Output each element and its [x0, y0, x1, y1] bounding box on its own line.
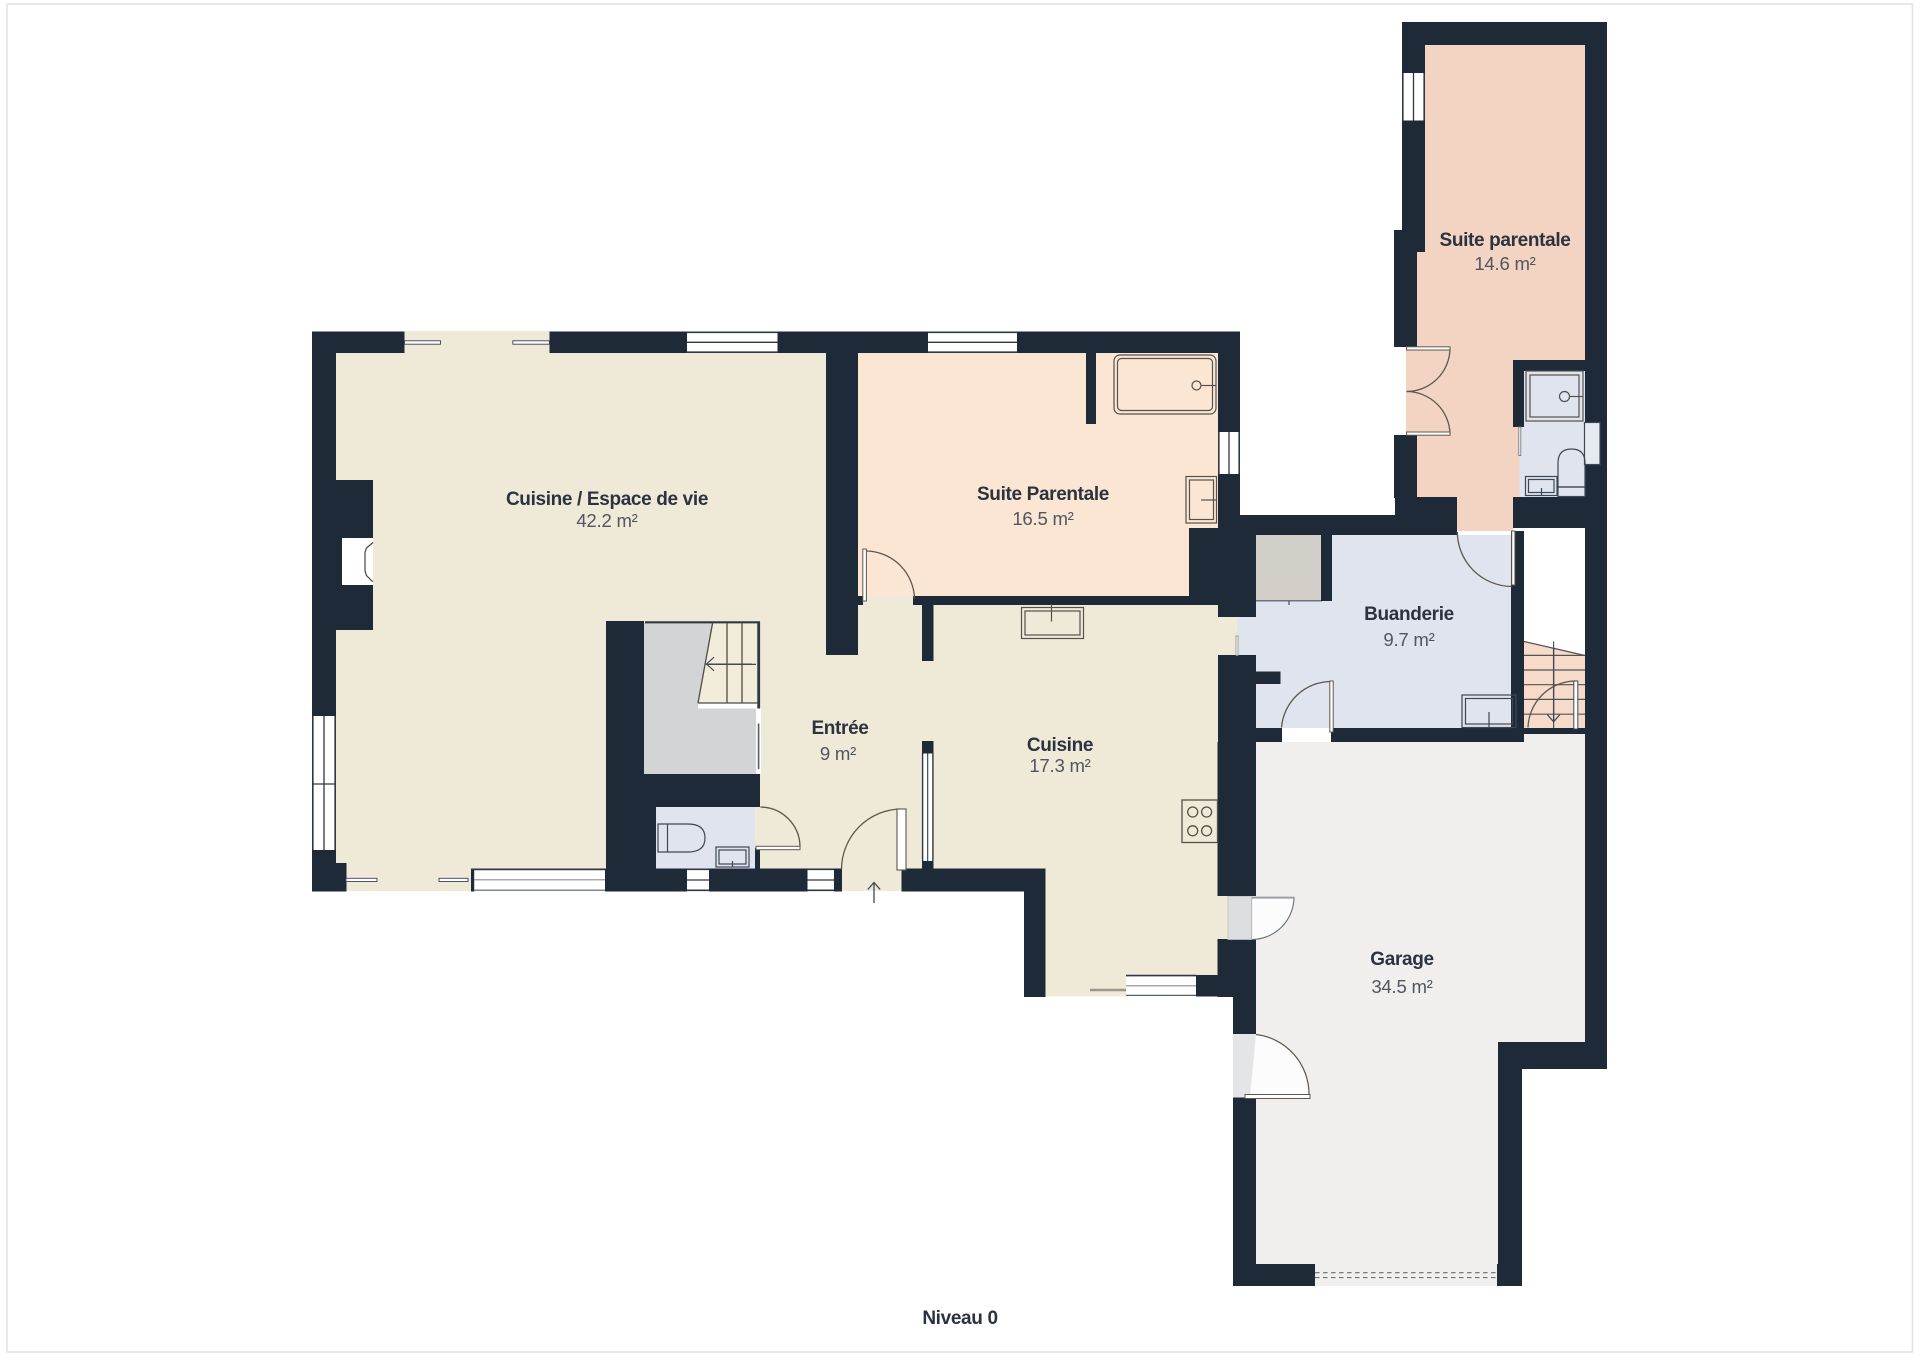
svg-text:Suite parentale: Suite parentale [1440, 230, 1571, 251]
svg-text:Niveau 0: Niveau 0 [922, 1308, 997, 1329]
svg-text:Cuisine: Cuisine [1027, 735, 1093, 756]
svg-text:34.5 m²: 34.5 m² [1371, 976, 1432, 997]
svg-text:Entrée: Entrée [811, 718, 868, 739]
svg-text:16.5 m²: 16.5 m² [1012, 508, 1073, 529]
svg-text:Suite Parentale: Suite Parentale [977, 484, 1109, 505]
svg-text:Buanderie: Buanderie [1364, 604, 1454, 625]
svg-text:9 m²: 9 m² [820, 743, 856, 764]
svg-text:42.2 m²: 42.2 m² [576, 510, 637, 531]
svg-text:Cuisine / Espace de vie: Cuisine / Espace de vie [506, 489, 708, 510]
svg-text:Garage: Garage [1370, 949, 1433, 970]
svg-text:17.3 m²: 17.3 m² [1029, 755, 1090, 776]
svg-text:9.7 m²: 9.7 m² [1383, 629, 1434, 650]
svg-text:14.6 m²: 14.6 m² [1474, 253, 1535, 274]
